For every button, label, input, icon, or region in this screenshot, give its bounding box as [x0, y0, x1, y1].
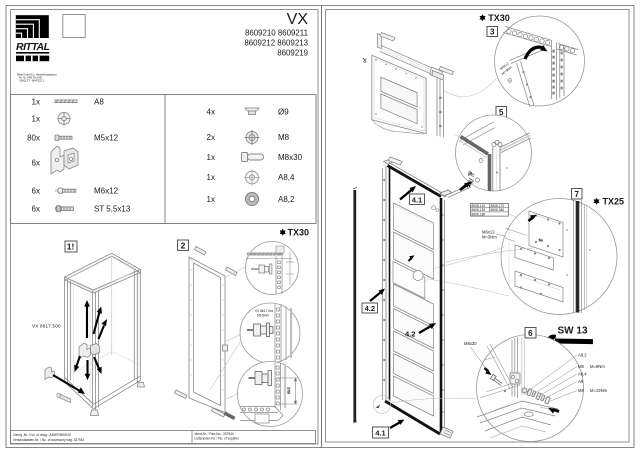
svg-text:M6x12: M6x12: [94, 187, 119, 196]
svg-text:3: 3: [490, 28, 495, 37]
svg-text:TX30: TX30: [288, 228, 310, 238]
svg-text:8608.380: 8608.380: [491, 208, 505, 212]
svg-text:1x: 1x: [207, 153, 215, 162]
svg-text:M5x12: M5x12: [94, 134, 119, 143]
svg-text:1x: 1x: [32, 98, 40, 107]
svg-text:A8: A8: [578, 379, 584, 384]
svg-text:ST 5,5x13: ST 5,5x13: [94, 205, 131, 214]
svg-text:M=3Nm: M=3Nm: [482, 235, 497, 240]
svg-text:TX30: TX30: [488, 13, 510, 23]
svg-text:Zchng.-Nr. / No. of drwg.: A36: Zchng.-Nr. / No. of drwg.: A36970B05110: [13, 433, 71, 437]
svg-text:A8,4: A8,4: [578, 372, 587, 377]
svg-text:Ident-Nr. / Part-No.: 337944: Ident-Nr. / Part-No.: 337944: [195, 432, 234, 436]
svg-text:A8: A8: [94, 98, 104, 107]
svg-text:6x: 6x: [32, 187, 40, 196]
svg-text:4.2: 4.2: [405, 330, 415, 339]
svg-text:2x: 2x: [207, 133, 215, 142]
svg-text:69.5: 69.5: [287, 387, 291, 394]
svg-text:VX: VX: [287, 11, 309, 28]
svg-text:4.1: 4.1: [375, 429, 385, 438]
svg-text:TX25: TX25: [603, 197, 625, 207]
svg-text:UMQLT.T - MHP322.1: UMQLT.T - MHP322.1: [20, 80, 45, 83]
svg-text:2: 2: [181, 241, 186, 251]
svg-text:8609212 8609213: 8609212 8609213: [244, 39, 308, 48]
svg-text:7: 7: [574, 190, 579, 199]
svg-text:8609219: 8609219: [277, 49, 308, 58]
svg-text:M8: M8: [278, 133, 290, 142]
svg-text:M8: M8: [578, 364, 584, 369]
svg-text:4.1: 4.1: [412, 196, 422, 205]
svg-text:80x: 80x: [27, 134, 40, 143]
svg-text:SW 13: SW 13: [558, 326, 588, 337]
svg-text:4.2: 4.2: [365, 304, 375, 313]
svg-text:8608.180: 8608.180: [472, 212, 486, 216]
svg-text:1!: 1!: [67, 242, 75, 252]
svg-text:M=9Nm: M=9Nm: [590, 364, 605, 369]
svg-text:A8,2: A8,2: [578, 353, 587, 358]
svg-text:A8,2: A8,2: [278, 195, 295, 204]
svg-text:6x: 6x: [32, 159, 40, 168]
svg-text:4x: 4x: [207, 108, 215, 117]
svg-text:1x: 1x: [207, 195, 215, 204]
svg-text:VX 8617.0xx: VX 8617.0xx: [255, 309, 273, 313]
svg-text:8609210 8609211: 8609210 8609211: [245, 29, 308, 38]
svg-text:1x: 1x: [32, 115, 40, 124]
svg-text:RITTAL: RITTAL: [16, 41, 50, 53]
svg-text:M8: M8: [578, 388, 584, 393]
svg-text:A8,4: A8,4: [278, 173, 295, 182]
svg-text:M5 8Nm: M5 8Nm: [257, 314, 269, 318]
svg-text:Lieferanten-Nr. / No. of suppl: Lieferanten-Nr. / No. of supplier: [195, 437, 240, 441]
svg-text:M=19Nm: M=19Nm: [590, 388, 608, 393]
svg-text:M8x30: M8x30: [464, 341, 477, 346]
svg-text:1x: 1x: [207, 173, 215, 182]
svg-text:Ø9: Ø9: [278, 108, 289, 117]
svg-text:Versandkasten-Nr. / No. of acc: Versandkasten-Nr. / No. of accessory bag…: [13, 438, 84, 442]
svg-text:6: 6: [528, 329, 533, 338]
svg-text:VX 8617.500: VX 8617.500: [32, 324, 61, 329]
svg-text:6x: 6x: [32, 205, 40, 214]
svg-text:M8x30: M8x30: [278, 153, 303, 162]
